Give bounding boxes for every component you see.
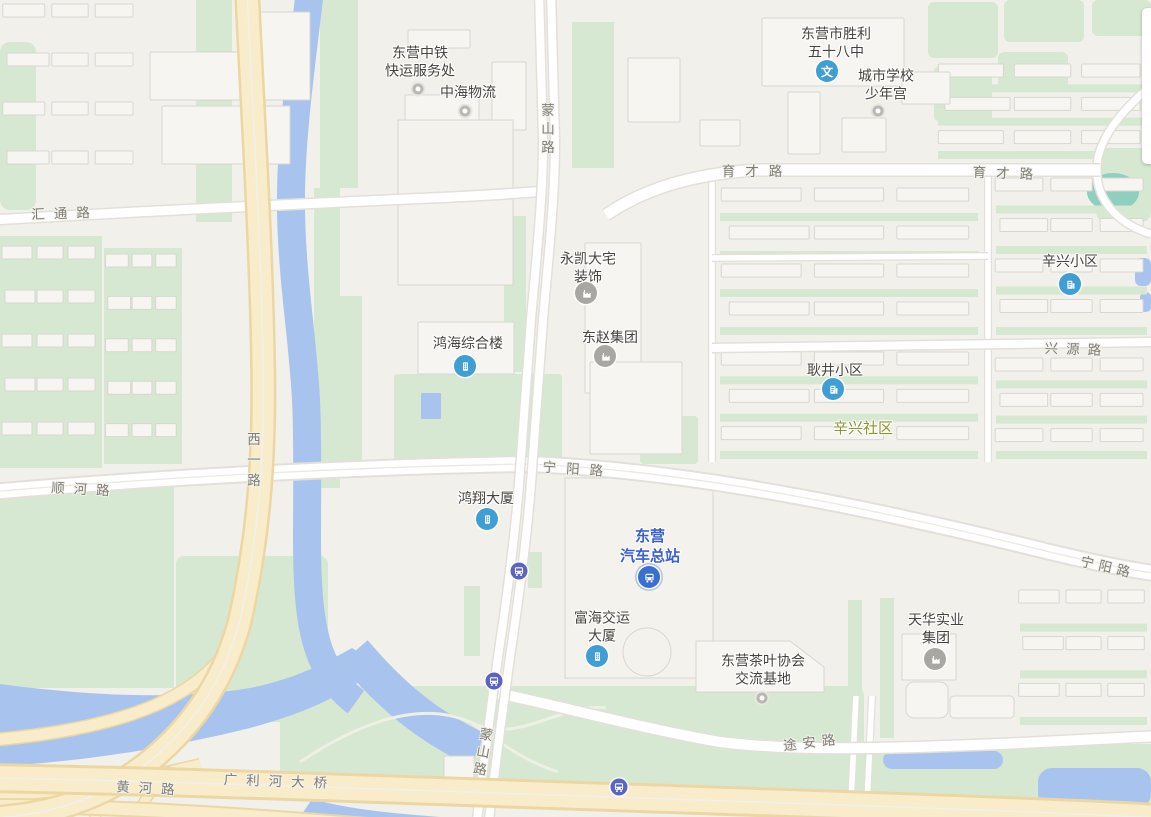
poi-label-line: 快运服务处 xyxy=(385,62,455,80)
poi-label-gengjing-residential[interactable]: 耿井小区 xyxy=(807,361,863,379)
tianhua-industrial-factory-icon[interactable] xyxy=(924,648,946,670)
honghai-complex-building-icon[interactable] xyxy=(454,355,476,377)
poi-label-line: 汽车总站 xyxy=(620,547,680,567)
road-label-mengshan-rd-top: 蒙山路 xyxy=(536,103,556,159)
poi-label-line: 耿井小区 xyxy=(807,361,863,379)
poi-label-line: 东营市胜利 xyxy=(801,25,871,43)
gengjing-residential-residential-icon[interactable] xyxy=(822,378,844,400)
dongying-bus-terminal-bus-station-icon[interactable] xyxy=(638,566,660,588)
poi-label-line: 中海物流 xyxy=(440,83,496,101)
poi-label-zhonghai-logistics[interactable]: 中海物流 xyxy=(440,83,496,101)
right-edge-panel-strip[interactable] xyxy=(1142,8,1151,164)
poi-label-line: 永凯大宅 xyxy=(560,250,616,268)
poi-label-dongzhao-group[interactable]: 东赵集团 xyxy=(582,328,638,346)
poi-label-xinxing-residential[interactable]: 辛兴小区 xyxy=(1042,252,1098,270)
dongzhao-group-factory-icon[interactable] xyxy=(594,345,616,367)
poi-label-line: 城市学校 xyxy=(858,67,914,85)
bus-stop-2-bus-stop-icon[interactable] xyxy=(486,673,503,690)
map-canvas[interactable] xyxy=(0,0,1151,817)
poi-label-hongxiang-tower[interactable]: 鸿翔大厦 xyxy=(458,489,514,507)
poi-label-line: 少年宫 xyxy=(858,85,914,103)
poi-label-line: 鸿翔大厦 xyxy=(458,489,514,507)
poi-label-tea-association-base[interactable]: 东营茶叶协会交流基地 xyxy=(721,652,805,689)
map-viewport[interactable]: 蒙山路蒙山路育才路育才路汇通路西一路顺河路宁阳路宁阳路兴源路途安路黄河路广利河大… xyxy=(0,0,1151,817)
fuhai-jiaoyun-tower-building-icon[interactable] xyxy=(586,645,608,667)
poi-label-line: 辛兴社区 xyxy=(833,419,893,439)
poi-label-line: 东赵集团 xyxy=(582,328,638,346)
poi-label-xinxing-community[interactable]: 辛兴社区 xyxy=(833,419,893,439)
road-label-huanghe-rd: 黄河路 xyxy=(116,775,184,799)
road-label-shunhe-rd: 顺河路 xyxy=(51,476,119,500)
road-label-yucai-rd-west: 育才路 xyxy=(722,160,793,180)
zhonghai-logistics-poi-dot-icon[interactable] xyxy=(458,104,473,119)
bus-stop-3-bus-stop-icon[interactable] xyxy=(611,779,628,796)
poi-label-fuhai-jiaoyun-tower[interactable]: 富海交运大厦 xyxy=(574,609,630,646)
poi-label-dongying-bus-terminal[interactable]: 东营汽车总站 xyxy=(620,527,680,567)
city-youth-palace-poi-dot-icon[interactable] xyxy=(871,104,886,119)
poi-label-line: 东营中铁 xyxy=(385,44,455,62)
shengli-58-school-school-icon[interactable]: 文 xyxy=(816,60,838,82)
poi-label-line: 辛兴小区 xyxy=(1042,252,1098,270)
poi-label-yongkai-decoration[interactable]: 永凯大宅装饰 xyxy=(560,250,616,287)
poi-label-line: 东营茶叶协会 xyxy=(721,652,805,670)
poi-label-line: 天华实业 xyxy=(908,611,964,629)
yongkai-decoration-factory-icon[interactable] xyxy=(575,282,597,304)
road-label-guanglihe-bridge: 广利河大桥 xyxy=(223,768,336,792)
xinxing-residential-residential-icon[interactable] xyxy=(1059,273,1081,295)
poi-label-line: 东营 xyxy=(620,527,680,547)
poi-label-city-youth-palace[interactable]: 城市学校少年宫 xyxy=(858,67,914,104)
road-label-xiyi-rd: 西一路 xyxy=(242,432,262,494)
poi-label-zhongtie-express[interactable]: 东营中铁快运服务处 xyxy=(385,44,455,81)
poi-label-line: 五十八中 xyxy=(801,43,871,61)
hongxiang-tower-building-icon[interactable] xyxy=(476,508,498,530)
tea-association-base-poi-dot-icon[interactable] xyxy=(755,691,770,706)
poi-label-shengli-58-school[interactable]: 东营市胜利五十八中 xyxy=(801,25,871,62)
road-label-yucai-rd-east: 育才路 xyxy=(972,161,1043,183)
poi-label-line: 富海交运 xyxy=(574,609,630,627)
poi-label-line: 大厦 xyxy=(574,627,630,645)
zhongtie-express-poi-dot-icon[interactable] xyxy=(411,82,426,97)
poi-label-tianhua-industrial[interactable]: 天华实业集团 xyxy=(908,611,964,648)
poi-label-line: 集团 xyxy=(908,629,964,647)
bus-stop-1-bus-stop-icon[interactable] xyxy=(511,563,528,580)
road-label-huitong-rd: 汇通路 xyxy=(31,201,99,223)
road-label-xingyuan-rd: 兴源路 xyxy=(1044,337,1109,359)
poi-label-line: 鸿海综合楼 xyxy=(433,334,503,352)
poi-label-line: 交流基地 xyxy=(721,670,805,688)
poi-label-honghai-complex[interactable]: 鸿海综合楼 xyxy=(433,334,503,352)
